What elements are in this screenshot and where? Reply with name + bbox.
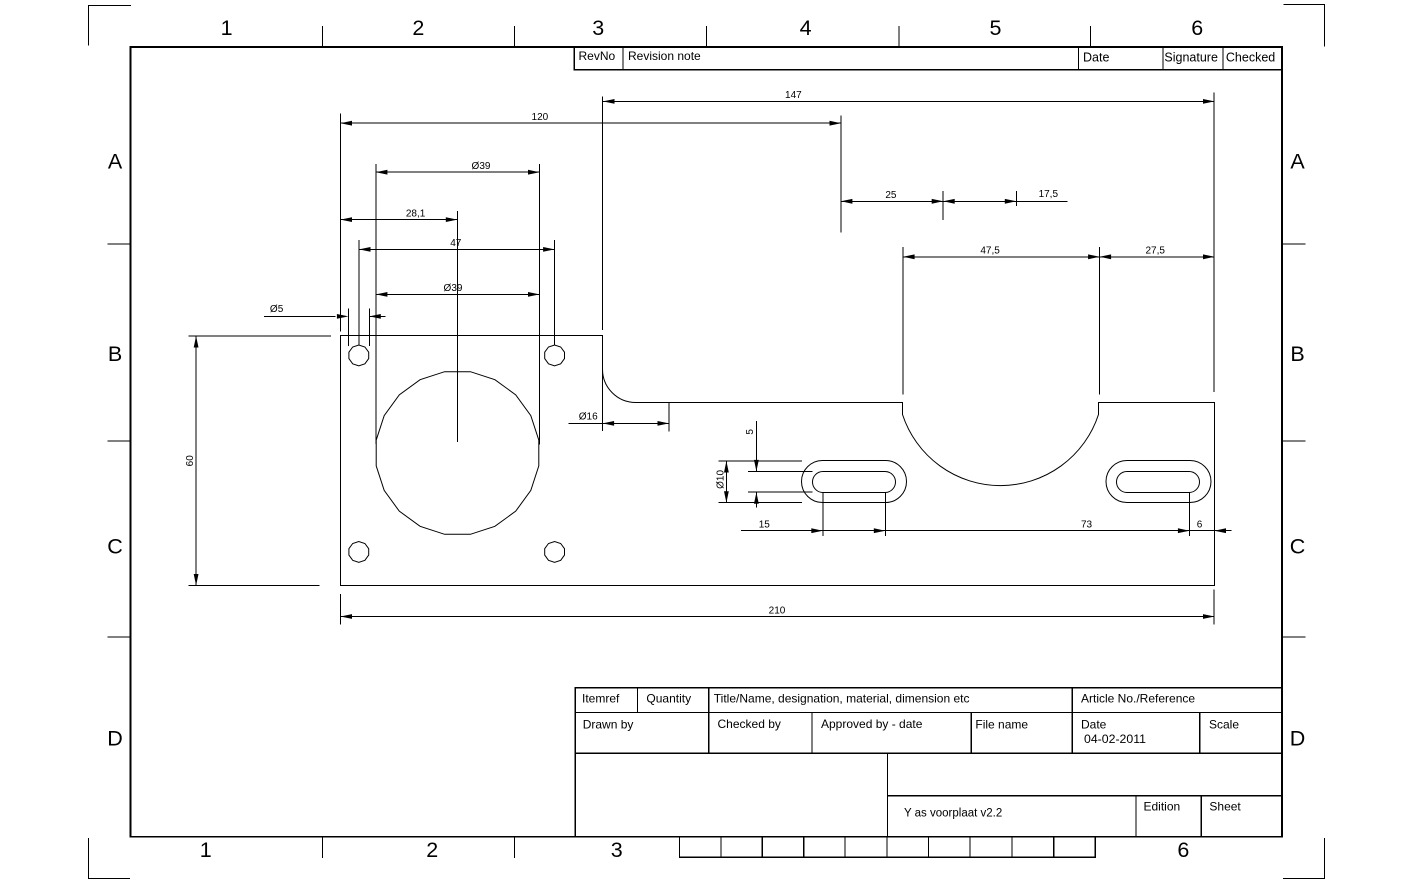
svg-text:Sheet: Sheet (1209, 800, 1241, 814)
svg-text:Article No./Reference: Article No./Reference (1081, 691, 1195, 705)
svg-text:3: 3 (611, 838, 623, 862)
svg-text:120: 120 (532, 112, 549, 123)
svg-text:Date: Date (1081, 718, 1107, 732)
svg-text:Itemref: Itemref (582, 691, 620, 705)
svg-text:210: 210 (769, 605, 786, 616)
svg-text:Ø39: Ø39 (444, 283, 463, 294)
svg-text:6: 6 (1197, 520, 1203, 531)
svg-text:Scale: Scale (1209, 718, 1239, 732)
svg-text:47,5: 47,5 (980, 246, 1000, 257)
svg-text:Drawn by: Drawn by (583, 718, 634, 732)
svg-text:A: A (108, 150, 123, 174)
svg-text:4: 4 (800, 16, 812, 40)
svg-text:B: B (1290, 342, 1304, 366)
svg-text:A: A (1290, 150, 1305, 174)
svg-text:Date: Date (1083, 51, 1109, 65)
svg-text:2: 2 (426, 838, 438, 862)
svg-text:3: 3 (592, 16, 604, 40)
svg-text:Approved by - date: Approved by - date (821, 717, 923, 731)
svg-text:2: 2 (412, 16, 424, 40)
svg-text:15: 15 (759, 520, 771, 531)
svg-text:Ø39: Ø39 (472, 161, 491, 172)
svg-text:Quantity: Quantity (646, 691, 691, 705)
svg-text:Revision note: Revision note (628, 49, 701, 63)
svg-text:28,1: 28,1 (406, 208, 426, 219)
svg-text:C: C (1290, 535, 1306, 559)
svg-text:Edition: Edition (1144, 800, 1181, 814)
svg-text:27,5: 27,5 (1145, 246, 1165, 257)
svg-text:Ø16: Ø16 (579, 412, 598, 423)
svg-text:73: 73 (1081, 520, 1093, 531)
svg-text:25: 25 (885, 190, 897, 201)
svg-text:5: 5 (745, 429, 756, 435)
svg-text:60: 60 (185, 455, 196, 467)
svg-text:47: 47 (450, 238, 462, 249)
svg-text:Ø10: Ø10 (716, 470, 727, 489)
svg-text:5: 5 (990, 16, 1002, 40)
svg-text:D: D (107, 726, 123, 750)
svg-text:1: 1 (200, 838, 212, 862)
svg-text:File name: File name (975, 718, 1028, 732)
svg-text:Title/Name, designation, mater: Title/Name, designation, material, dimen… (714, 691, 970, 705)
svg-text:Ø5: Ø5 (270, 304, 284, 315)
svg-text:RevNo: RevNo (579, 49, 616, 63)
svg-text:B: B (108, 342, 122, 366)
svg-text:6: 6 (1177, 838, 1189, 862)
svg-text:Checked: Checked (1226, 51, 1275, 65)
svg-text:Y as voorplaat v2.2: Y as voorplaat v2.2 (904, 808, 1002, 820)
svg-text:Signature: Signature (1164, 51, 1218, 65)
svg-text:D: D (1290, 726, 1306, 750)
svg-text:6: 6 (1191, 16, 1203, 40)
svg-text:147: 147 (785, 90, 802, 101)
svg-text:C: C (107, 535, 123, 559)
svg-text:17,5: 17,5 (1039, 189, 1059, 200)
svg-text:Checked by: Checked by (718, 717, 781, 731)
svg-text:04-02-2011: 04-02-2011 (1084, 732, 1146, 746)
svg-text:1: 1 (221, 16, 233, 40)
